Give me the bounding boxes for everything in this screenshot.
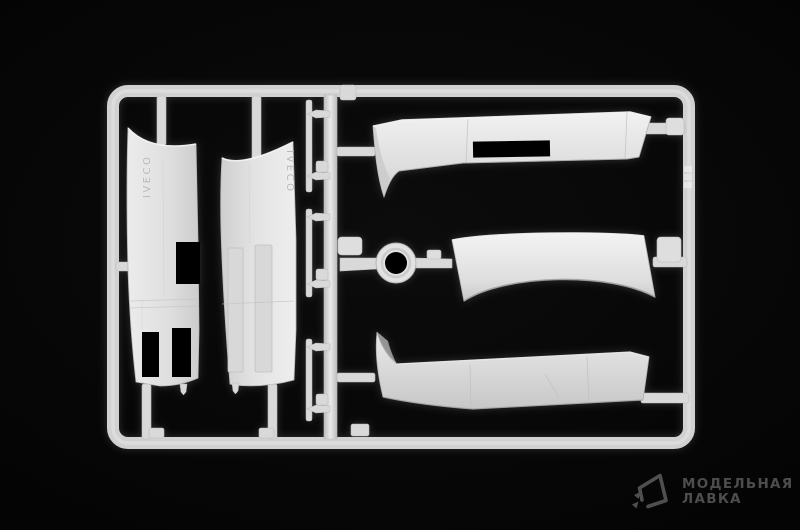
pin-tab <box>316 394 328 405</box>
mold-mark <box>684 166 692 188</box>
fairing-slot <box>142 332 159 377</box>
wind-deflector-lower <box>337 332 689 409</box>
gate <box>337 147 375 156</box>
embossed-text-iveco-right: IVECO IVECO <box>284 149 295 193</box>
gate <box>252 96 261 160</box>
gate-pad <box>149 428 164 438</box>
pin-tab <box>316 161 328 172</box>
fairing-pin <box>232 383 239 394</box>
gate <box>416 258 452 268</box>
gate-pad <box>338 237 362 255</box>
watermark-line2: ЛАВКА <box>682 492 794 507</box>
wind-deflector-upper <box>337 112 685 197</box>
svg-text:IVECO: IVECO <box>284 150 295 193</box>
gate <box>641 393 689 403</box>
gate <box>340 258 377 271</box>
side-fairing-right: IVECO IVECO <box>221 142 296 394</box>
gate-pad <box>666 118 684 135</box>
fairing-slot <box>172 328 191 377</box>
gate-pad <box>259 428 274 438</box>
gate-pad <box>351 424 369 436</box>
watermark-line1: МОДЕЛЬНАЯ <box>682 477 794 492</box>
deflector-vent-slot <box>473 140 550 157</box>
roof-panel-assembly <box>338 233 687 301</box>
watermark: МОДЕЛЬНАЯ ЛАВКА <box>631 470 794 514</box>
ring-grommet <box>376 243 416 283</box>
photo-model-kit-sprue: IVECO IVECO <box>0 0 800 530</box>
fairing-notch <box>176 242 200 284</box>
side-fairing-left: IVECO IVECO <box>127 128 200 395</box>
runner-tab <box>340 85 356 100</box>
fairing-pin <box>180 384 187 395</box>
gate-pad <box>657 237 681 262</box>
gate <box>337 373 375 382</box>
watermark-text: МОДЕЛЬНАЯ ЛАВКА <box>682 477 794 507</box>
embossed-text-iveco-left: IVECO IVECO <box>141 154 153 198</box>
svg-text:IVECO: IVECO <box>142 155 153 198</box>
roof-panel-center <box>452 233 655 301</box>
gate <box>157 96 166 145</box>
paper-plane-icon <box>631 470 671 514</box>
sprue-photo-canvas: IVECO IVECO <box>0 0 800 530</box>
gate-tab <box>427 250 441 259</box>
pin-tab <box>316 269 328 280</box>
